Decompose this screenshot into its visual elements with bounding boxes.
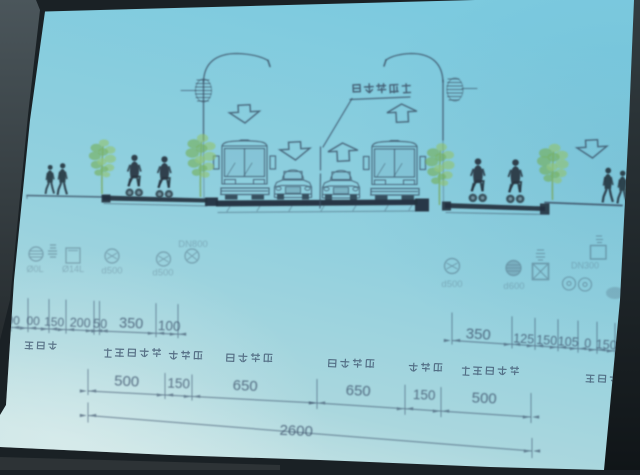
svg-text:d500: d500 [152, 268, 173, 279]
svg-text:105: 105 [557, 334, 579, 349]
svg-text:150: 150 [167, 376, 190, 392]
svg-text:125: 125 [513, 331, 535, 346]
svg-text:50: 50 [93, 317, 108, 332]
svg-text:500: 500 [471, 389, 497, 407]
svg-text:Ø14L: Ø14L [62, 264, 84, 274]
svg-text:350: 350 [465, 325, 491, 343]
svg-text:150: 150 [44, 315, 65, 330]
svg-text:650: 650 [232, 377, 258, 395]
svg-text:500: 500 [114, 372, 140, 390]
svg-text:Ø0L: Ø0L [26, 264, 43, 274]
svg-text:150: 150 [595, 337, 617, 352]
svg-text:650: 650 [345, 382, 371, 400]
svg-text:150: 150 [536, 333, 558, 348]
svg-text:100: 100 [158, 318, 181, 334]
svg-text:0: 0 [584, 336, 592, 350]
svg-text:d600: d600 [503, 281, 524, 292]
svg-text:DN300: DN300 [571, 261, 599, 271]
svg-text:150: 150 [413, 387, 436, 403]
svg-text:DN800: DN800 [178, 239, 208, 250]
svg-text:d500: d500 [441, 279, 462, 290]
svg-text:350: 350 [119, 315, 144, 332]
svg-text:00: 00 [26, 314, 40, 329]
svg-text:200: 200 [69, 316, 90, 331]
svg-text:d500: d500 [101, 266, 122, 277]
svg-text:2600: 2600 [279, 422, 313, 440]
